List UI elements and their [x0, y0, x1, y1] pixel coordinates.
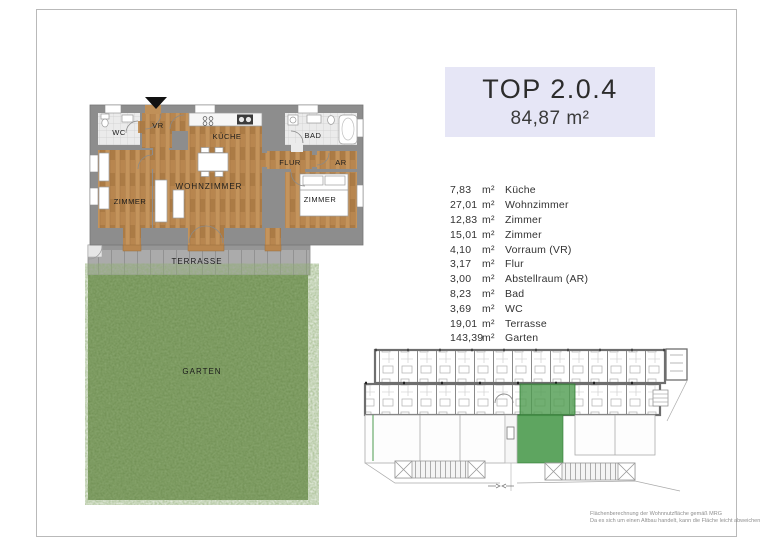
room-name: Wohnzimmer	[505, 199, 680, 211]
floor-plan: WC VR KÜCHE BAD FLUR AR ZIMMER WOHNZIMME…	[85, 95, 380, 505]
footnote-line-2: Da es sich um einen Altbau handelt, kann…	[590, 518, 760, 525]
room-name: Abstellraum (AR)	[505, 273, 680, 285]
site-plan	[360, 343, 690, 498]
room-name: Bad	[505, 288, 680, 300]
floor-plan-drawing	[85, 95, 380, 505]
kitchen-counter	[189, 113, 262, 126]
garden-plots	[365, 415, 655, 463]
room-name: Zimmer	[505, 214, 680, 226]
room-list: 7,83m²Küche 27,01m²Wohnzimmer 12,83m²Zim…	[450, 183, 680, 346]
footnote-line-1: Flächenberechnung der Wohnnutzfläche gem…	[590, 511, 760, 518]
site-plan-drawing	[360, 343, 690, 498]
room-unit: m²	[482, 244, 505, 256]
label-kueche: KÜCHE	[197, 132, 257, 141]
room-area: 3,17	[450, 258, 482, 270]
room-list-row: 3,17m²Flur	[450, 257, 680, 272]
title-box: TOP 2.0.4 84,87 m²	[445, 67, 655, 137]
room-list-row: 12,83m²Zimmer	[450, 213, 680, 228]
room-area: 15,01	[450, 229, 482, 241]
label-zimmer-left: ZIMMER	[105, 197, 155, 206]
room-unit: m²	[482, 214, 505, 226]
label-wc: WC	[107, 128, 131, 137]
room-area: 3,00	[450, 273, 482, 285]
label-flur: FLUR	[270, 158, 310, 167]
label-zimmer-right: ZIMMER	[295, 195, 345, 204]
label-terrasse: TERRASSE	[147, 257, 247, 266]
room-area: 7,83	[450, 184, 482, 196]
room-vr-floor	[142, 113, 172, 148]
room-name: Flur	[505, 258, 680, 270]
building-lower-strip	[365, 383, 660, 415]
footnote: Flächenberechnung der Wohnnutzfläche gem…	[590, 511, 760, 525]
room-area: 12,83	[450, 214, 482, 226]
label-garten: GARTEN	[152, 367, 252, 376]
room-unit: m²	[482, 184, 505, 196]
room-list-row: 8,23m²Bad	[450, 287, 680, 302]
room-name: WC	[505, 303, 680, 315]
room-name: Terrasse	[505, 318, 680, 330]
label-ar: AR	[331, 158, 351, 167]
unit-title: TOP 2.0.4	[482, 74, 618, 105]
room-list-row: 3,69m²WC	[450, 301, 680, 316]
highlighted-unit	[517, 384, 575, 463]
room-name: Zimmer	[505, 229, 680, 241]
room-list-row: 27,01m²Wohnzimmer	[450, 198, 680, 213]
room-list-row: 3,00m²Abstellraum (AR)	[450, 272, 680, 287]
room-list-row: 15,01m²Zimmer	[450, 227, 680, 242]
room-area: 4,10	[450, 244, 482, 256]
building-upper-strip	[375, 349, 687, 383]
room-area: 27,01	[450, 199, 482, 211]
floorplan-sheet: WC VR KÜCHE BAD FLUR AR ZIMMER WOHNZIMME…	[0, 0, 770, 545]
label-bad: BAD	[298, 131, 328, 140]
label-vr: VR	[148, 121, 168, 130]
room-unit: m²	[482, 318, 505, 330]
room-list-row: 4,10m²Vorraum (VR)	[450, 242, 680, 257]
room-unit: m²	[482, 273, 505, 285]
room-unit: m²	[482, 288, 505, 300]
room-area: 19,01	[450, 318, 482, 330]
room-name: Küche	[505, 184, 680, 196]
room-area: 8,23	[450, 288, 482, 300]
room-list-row: 7,83m²Küche	[450, 183, 680, 198]
label-wohnzimmer: WOHNZIMMER	[164, 182, 254, 191]
unit-total-area: 84,87 m²	[511, 108, 590, 130]
room-unit: m²	[482, 199, 505, 211]
room-unit: m²	[482, 303, 505, 315]
terrace-strips	[395, 461, 635, 480]
room-name: Vorraum (VR)	[505, 244, 680, 256]
room-area: 3,69	[450, 303, 482, 315]
garden-area	[88, 275, 308, 500]
room-unit: m²	[482, 258, 505, 270]
room-unit: m²	[482, 229, 505, 241]
room-list-row: 19,01m²Terrasse	[450, 316, 680, 331]
